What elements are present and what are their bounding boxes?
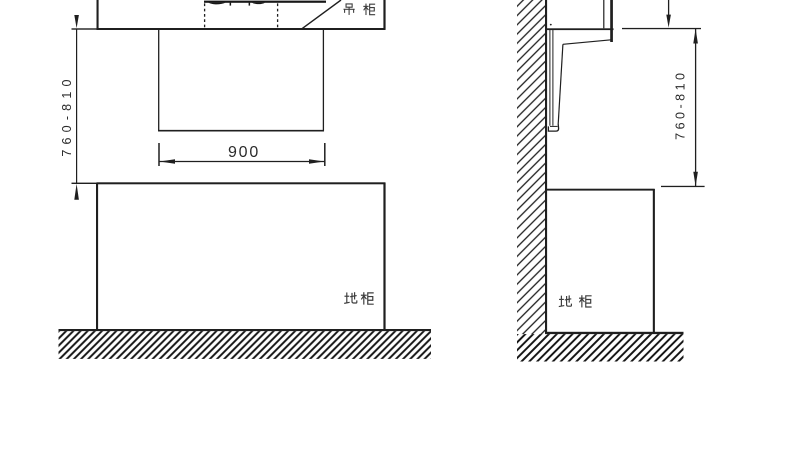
svg-text:760-810: 760-810: [674, 70, 688, 140]
svg-text:760-810: 760-810: [60, 74, 74, 156]
svg-text:900: 900: [228, 144, 260, 161]
